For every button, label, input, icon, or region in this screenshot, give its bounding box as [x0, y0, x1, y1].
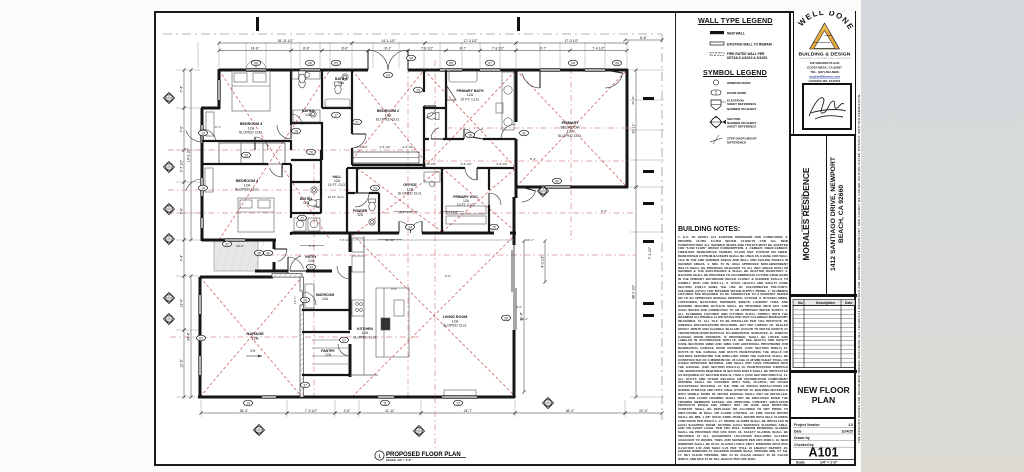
svg-text:24'-1": 24'-1" [520, 317, 528, 321]
svg-text:9'-2": 9'-2" [601, 209, 607, 213]
svg-text:14'-6": 14'-6" [251, 46, 260, 50]
svg-text:1.0: 1.0 [848, 423, 853, 427]
svg-text:1/24/25: 1/24/25 [841, 430, 853, 434]
svg-text:DIFFERENCE: DIFFERENCE [727, 140, 746, 144]
svg-text:26: 26 [303, 298, 307, 302]
svg-text:19: 19 [244, 153, 248, 157]
svg-text:17'-3 1/2": 17'-3 1/2" [564, 39, 579, 43]
svg-text:4'-8 1/2": 4'-8 1/2" [424, 162, 435, 166]
svg-text:4'-6 1/2": 4'-6 1/2" [402, 145, 413, 149]
svg-text:02: 02 [199, 336, 203, 340]
svg-text:24'-1": 24'-1" [526, 238, 534, 242]
svg-text:SLOPED CLG.: SLOPED CLG. [398, 192, 423, 196]
svg-text:12: 12 [456, 401, 460, 405]
svg-text:7'-8 1/2": 7'-8 1/2" [492, 46, 505, 50]
svg-text:1%: 1% [250, 349, 256, 353]
svg-text:8'-6": 8'-6" [640, 36, 648, 40]
svg-text:9'-2": 9'-2" [445, 274, 451, 278]
svg-text:37: 37 [303, 383, 307, 387]
svg-text:05: 05 [615, 61, 619, 65]
svg-text:06: 06 [449, 61, 453, 65]
svg-text:sea@welldoneco.com: sea@welldoneco.com [809, 74, 841, 78]
svg-text:20: 20 [309, 150, 313, 154]
svg-text:SHEET REFERENCE: SHEET REFERENCE [727, 125, 756, 129]
svg-text:7'-4": 7'-4" [180, 254, 184, 262]
svg-text:11'-11": 11'-11" [385, 238, 394, 242]
svg-text:3'-6": 3'-6" [344, 409, 352, 413]
svg-text:10 FT. CLG.: 10 FT. CLG. [457, 203, 475, 207]
svg-text:A401: A401 [545, 404, 551, 407]
svg-text:34: 34 [409, 56, 413, 60]
svg-text:07: 07 [488, 61, 492, 65]
svg-text:12A: 12A [325, 353, 332, 357]
svg-text:03: 03 [334, 61, 338, 65]
svg-text:8'-6": 8'-6" [303, 46, 311, 50]
svg-text:Drawn by: Drawn by [794, 436, 810, 440]
svg-text:Date: Date [794, 430, 802, 434]
svg-text:14'-1 1/2": 14'-1 1/2" [381, 39, 396, 43]
svg-text:12A: 12A [357, 213, 364, 217]
svg-text:5'-4": 5'-4" [309, 244, 315, 248]
svg-text:08: 08 [254, 61, 258, 65]
svg-text:5'-4": 5'-4" [530, 157, 536, 161]
svg-text:2'-7 1/2": 2'-7 1/2" [180, 159, 184, 172]
svg-text:SLOPED CLG.: SLOPED CLG. [235, 188, 260, 192]
svg-text:TEL. (947)-594-6998: TEL. (947)-594-6998 [810, 70, 838, 74]
svg-text:8'-11 1/2": 8'-11 1/2" [400, 210, 413, 214]
svg-text:DETAILS 4/A015 & 5/A051: DETAILS 4/A015 & 5/A051 [727, 56, 767, 60]
svg-text:7'-3 1/2": 7'-3 1/2" [648, 246, 652, 259]
svg-text:DOOR MARK: DOOR MARK [727, 91, 747, 95]
svg-text:SLOPED CLG.: SLOPED CLG. [443, 324, 468, 328]
svg-text:7'-4": 7'-4" [180, 85, 184, 93]
svg-text:12A: 12A [308, 259, 315, 263]
svg-text:18'-6": 18'-6" [236, 244, 244, 248]
svg-text:25: 25 [492, 225, 496, 229]
svg-text:Scale: Scale [796, 461, 805, 465]
svg-text:SLOPED CLG.: SLOPED CLG. [376, 118, 401, 122]
svg-text:EXISTING WALL TO REMAIN: EXISTING WALL TO REMAIN [727, 43, 773, 47]
svg-text:4'-8 1/2": 4'-8 1/2" [460, 162, 471, 166]
svg-text:8'-6": 8'-6" [342, 46, 350, 50]
svg-text:4'-5": 4'-5" [391, 287, 397, 291]
svg-text:1: 1 [378, 454, 381, 459]
svg-text:12A: 12A [322, 297, 329, 301]
svg-text:4'-6 1/2": 4'-6 1/2" [379, 145, 390, 149]
svg-text:4'-8 1/2": 4'-8 1/2" [496, 162, 507, 166]
svg-text:1/4" = 1'-0": 1/4" = 1'-0" [820, 461, 838, 465]
svg-text:A401: A401 [166, 99, 172, 102]
svg-text:A101: A101 [809, 446, 839, 460]
svg-text:17'-3 1/2": 17'-3 1/2" [463, 39, 478, 43]
svg-text:36'-4": 36'-4" [240, 409, 249, 413]
svg-text:14'-3 1/2": 14'-3 1/2" [187, 147, 191, 162]
svg-text:32: 32 [225, 242, 229, 246]
svg-text:COSTA MESA, CA 92627: COSTA MESA, CA 92627 [807, 66, 842, 70]
svg-text:WINDOW MARK: WINDOW MARK [727, 81, 751, 85]
svg-text:9'-2": 9'-2" [516, 305, 522, 309]
svg-text:24: 24 [408, 225, 412, 229]
svg-text:18: 18 [294, 129, 298, 133]
svg-text:31: 31 [522, 131, 526, 135]
svg-text:36'-4": 36'-4" [566, 409, 575, 413]
svg-text:11'-11": 11'-11" [385, 409, 396, 413]
svg-text:A401: A401 [256, 431, 262, 434]
svg-text:28: 28 [504, 316, 508, 320]
svg-text:8'-11 1/2": 8'-11 1/2" [446, 210, 459, 214]
svg-text:13: 13 [201, 131, 205, 135]
svg-text:04: 04 [571, 61, 575, 65]
svg-text:12A: 12A [305, 113, 312, 117]
svg-text:8'-7": 8'-7" [540, 46, 548, 50]
svg-text:7'-8 1/2": 7'-8 1/2" [421, 46, 434, 50]
svg-text:33: 33 [309, 265, 313, 269]
svg-text:36: 36 [266, 251, 270, 255]
svg-text:SLOPED CLG.: SLOPED CLG. [353, 335, 377, 339]
svg-text:10: 10 [246, 401, 250, 405]
svg-text:A401: A401 [166, 320, 172, 323]
svg-text:10 FT. CLG.: 10 FT. CLG. [460, 97, 479, 101]
svg-text:7'-3 1/2": 7'-3 1/2" [339, 238, 350, 242]
svg-text:10 FT. CLG.: 10 FT. CLG. [328, 183, 346, 187]
svg-text:A401: A401 [166, 210, 172, 213]
svg-text:A401: A401 [166, 168, 172, 171]
svg-text:23: 23 [373, 186, 377, 190]
svg-text:26'-11 1/2": 26'-11 1/2" [278, 39, 295, 43]
svg-text:139 VIRGINIA PLACE: 139 VIRGINIA PLACE [809, 61, 839, 65]
svg-text:A401: A401 [166, 299, 172, 302]
svg-text:35: 35 [257, 251, 261, 255]
svg-text:Date: Date [845, 301, 852, 305]
svg-text:7'-6": 7'-6" [180, 125, 184, 133]
svg-text:12'-1": 12'-1" [293, 296, 297, 304]
svg-text:Project Version: Project Version [794, 423, 819, 427]
svg-text:48'-2 1/2": 48'-2 1/2" [632, 284, 636, 299]
svg-text:SLOPED CLG.: SLOPED CLG. [239, 131, 264, 135]
svg-text:12'-6": 12'-6" [180, 358, 184, 367]
svg-text:12B: 12B [251, 336, 258, 341]
svg-text:10 FT. CLG.: 10 FT. CLG. [328, 195, 345, 199]
svg-text:16: 16 [468, 133, 472, 137]
svg-text:8'-7": 8'-7" [460, 46, 468, 50]
svg-text:11: 11 [383, 401, 387, 405]
svg-text:15: 15 [416, 88, 420, 92]
svg-text:BUILDING & DESIGN: BUILDING & DESIGN [799, 52, 852, 57]
svg-text:4'-6 1/2": 4'-6 1/2" [356, 145, 367, 149]
svg-text:8'-1": 8'-1" [385, 46, 393, 50]
svg-text:12A: 12A [338, 81, 345, 85]
svg-text:17: 17 [334, 113, 338, 117]
svg-text:22: 22 [300, 216, 304, 220]
svg-text:9'-1": 9'-1" [215, 125, 221, 129]
svg-text:A401: A401 [166, 240, 172, 243]
svg-text:NUMBER ON SHEET: NUMBER ON SHEET [727, 107, 757, 111]
svg-text:No.: No. [798, 301, 804, 305]
svg-text:A401: A401 [416, 432, 422, 435]
svg-text:12A: 12A [303, 201, 310, 205]
svg-text:Description: Description [816, 301, 835, 305]
svg-text:30: 30 [555, 179, 559, 183]
svg-text:13'-6": 13'-6" [180, 298, 184, 307]
svg-text:SHEET REFERENCE: SHEET REFERENCE [727, 102, 756, 106]
svg-text:30'-11": 30'-11" [631, 95, 635, 104]
svg-text:A401: A401 [540, 192, 546, 195]
svg-text:22'-4": 22'-4" [639, 409, 648, 413]
svg-text:27: 27 [342, 338, 346, 342]
svg-text:SLOPED CLG.: SLOPED CLG. [558, 134, 583, 138]
svg-text:7'-4 1/2": 7'-4 1/2" [592, 46, 605, 50]
svg-text:14: 14 [201, 186, 205, 190]
svg-text:NEW WALL: NEW WALL [727, 32, 745, 36]
svg-text:4'-3 1/2": 4'-3 1/2" [541, 255, 545, 268]
svg-text:GENERAL CONTRACTING SERVICES: GENERAL CONTRACTING SERVICES [799, 57, 852, 60]
svg-text:09: 09 [308, 61, 312, 65]
svg-text:21: 21 [355, 120, 359, 124]
svg-text:24'-7": 24'-7" [464, 409, 473, 413]
svg-text:24: 24 [386, 73, 390, 77]
svg-text:34'-6": 34'-6" [187, 331, 191, 340]
svg-text:SCALE: 1/4" = 1'-0": SCALE: 1/4" = 1'-0" [386, 458, 412, 462]
svg-text:7'-3 1/2": 7'-3 1/2" [305, 409, 318, 413]
